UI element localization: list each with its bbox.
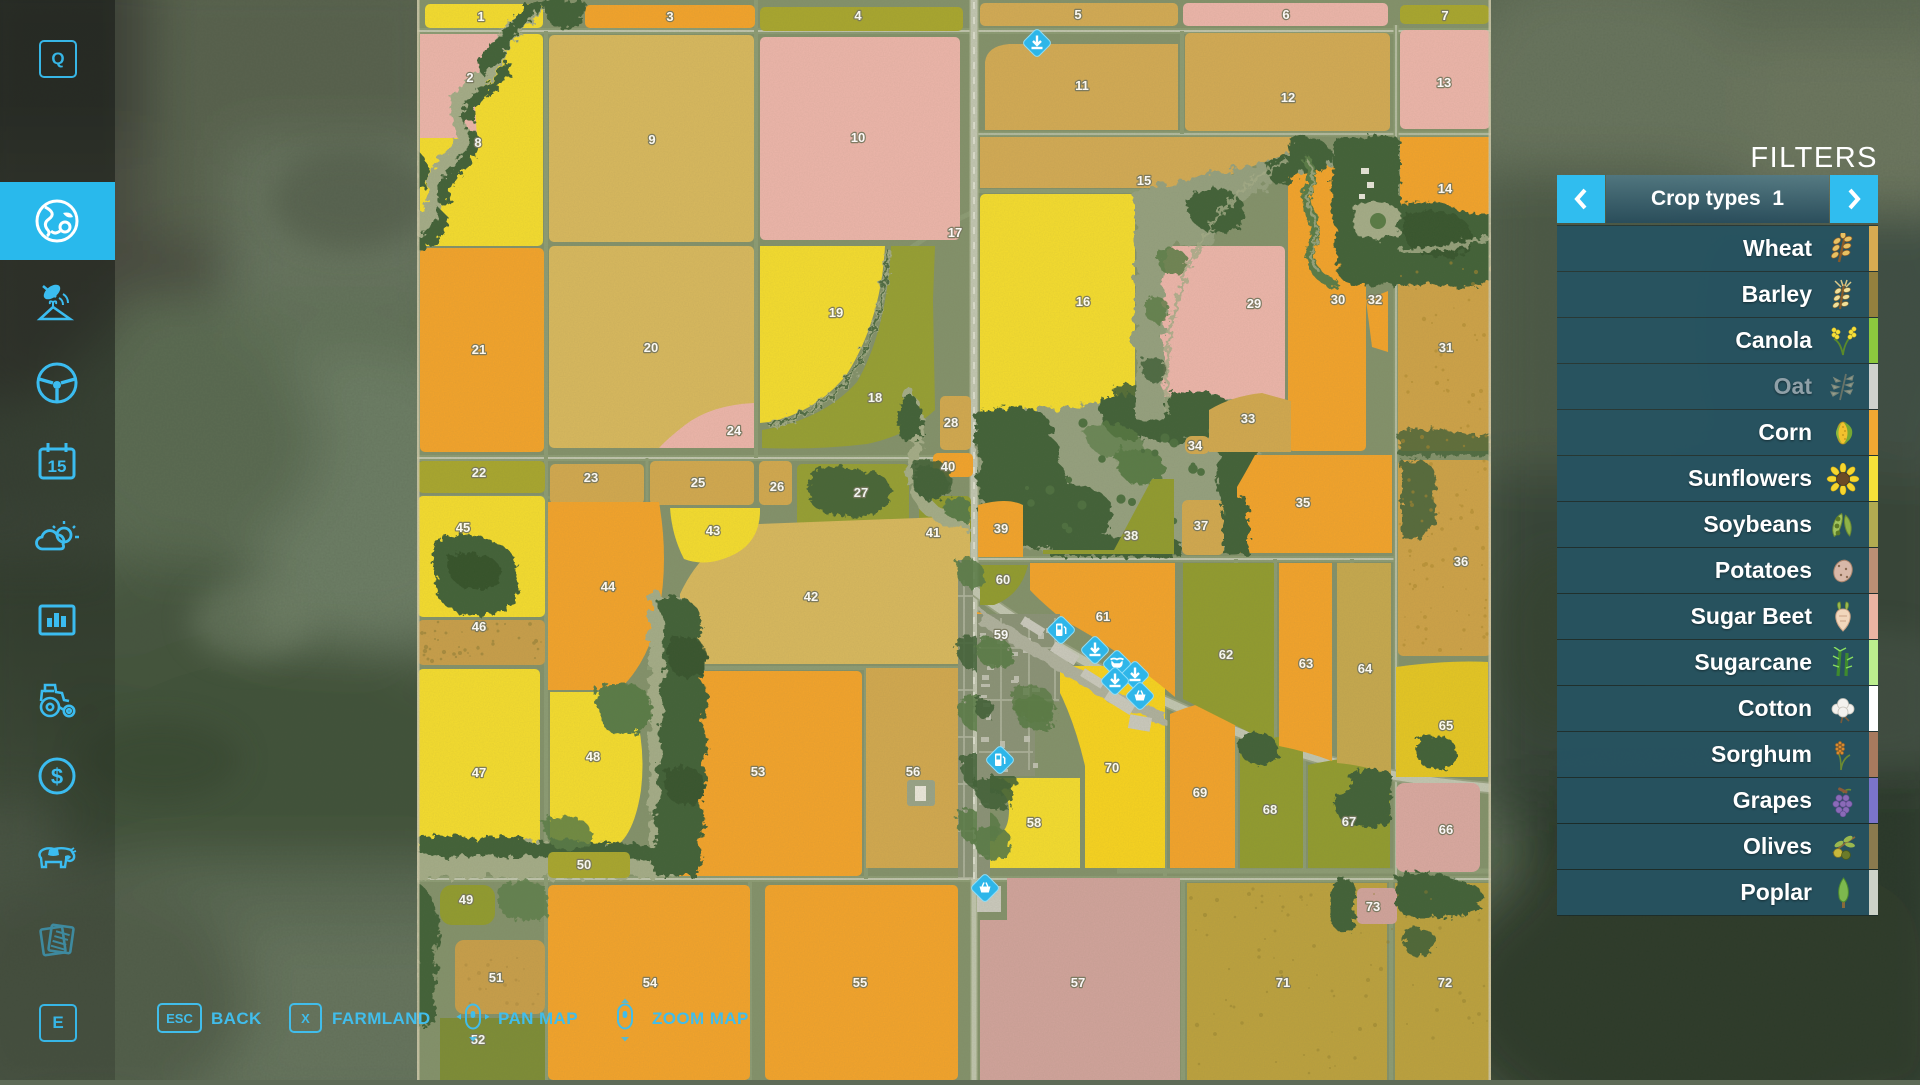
svg-text:16: 16 xyxy=(1076,294,1090,309)
svg-text:44: 44 xyxy=(601,579,616,594)
svg-text:22: 22 xyxy=(472,465,486,480)
svg-text:72: 72 xyxy=(1438,975,1452,990)
svg-text:43: 43 xyxy=(706,523,720,538)
svg-text:19: 19 xyxy=(829,305,843,320)
svg-text:70: 70 xyxy=(1105,760,1119,775)
svg-text:66: 66 xyxy=(1439,822,1453,837)
svg-text:50: 50 xyxy=(577,857,591,872)
svg-text:14: 14 xyxy=(1438,181,1453,196)
svg-text:55: 55 xyxy=(853,975,867,990)
svg-text:48: 48 xyxy=(586,749,600,764)
svg-text:61: 61 xyxy=(1096,609,1110,624)
svg-text:12: 12 xyxy=(1281,90,1295,105)
svg-text:47: 47 xyxy=(472,765,486,780)
svg-text:30: 30 xyxy=(1331,292,1345,307)
svg-text:5: 5 xyxy=(1074,7,1081,22)
svg-text:34: 34 xyxy=(1188,438,1203,453)
svg-text:60: 60 xyxy=(996,572,1010,587)
svg-text:53: 53 xyxy=(751,764,765,779)
svg-text:8: 8 xyxy=(474,135,481,150)
svg-text:42: 42 xyxy=(804,589,818,604)
svg-text:$: $ xyxy=(51,764,63,789)
svg-text:51: 51 xyxy=(489,970,503,985)
svg-text:37: 37 xyxy=(1194,518,1208,533)
svg-text:32: 32 xyxy=(1368,292,1382,307)
svg-text:68: 68 xyxy=(1263,802,1277,817)
svg-text:57: 57 xyxy=(1071,975,1085,990)
svg-text:21: 21 xyxy=(472,342,486,357)
svg-text:35: 35 xyxy=(1296,495,1310,510)
svg-text:54: 54 xyxy=(643,975,658,990)
svg-text:17: 17 xyxy=(948,225,962,240)
svg-text:64: 64 xyxy=(1358,661,1373,676)
svg-text:15: 15 xyxy=(1137,173,1151,188)
svg-text:39: 39 xyxy=(994,521,1008,536)
svg-text:7: 7 xyxy=(1441,8,1448,23)
svg-text:1: 1 xyxy=(477,9,484,24)
svg-text:41: 41 xyxy=(926,525,940,540)
svg-text:3: 3 xyxy=(666,9,673,24)
svg-text:71: 71 xyxy=(1276,975,1290,990)
svg-text:24: 24 xyxy=(727,423,742,438)
svg-text:25: 25 xyxy=(691,475,705,490)
svg-text:62: 62 xyxy=(1219,647,1233,662)
svg-text:49: 49 xyxy=(459,892,473,907)
svg-text:28: 28 xyxy=(944,415,958,430)
svg-text:15: 15 xyxy=(48,457,67,476)
svg-text:63: 63 xyxy=(1299,656,1313,671)
svg-text:69: 69 xyxy=(1193,785,1207,800)
svg-text:2: 2 xyxy=(466,70,473,85)
svg-text:31: 31 xyxy=(1439,340,1453,355)
svg-text:6: 6 xyxy=(1282,7,1289,22)
svg-text:67: 67 xyxy=(1342,814,1356,829)
svg-text:58: 58 xyxy=(1027,815,1041,830)
svg-text:46: 46 xyxy=(472,619,486,634)
svg-text:10: 10 xyxy=(851,130,865,145)
svg-text:11: 11 xyxy=(1075,78,1089,93)
svg-text:40: 40 xyxy=(941,459,955,474)
svg-text:45: 45 xyxy=(456,520,470,535)
svg-text:29: 29 xyxy=(1247,296,1261,311)
svg-text:38: 38 xyxy=(1124,528,1138,543)
svg-text:13: 13 xyxy=(1437,75,1451,90)
svg-text:59: 59 xyxy=(994,627,1008,642)
svg-text:23: 23 xyxy=(584,470,598,485)
svg-text:56: 56 xyxy=(906,764,920,779)
svg-text:20: 20 xyxy=(644,340,658,355)
svg-text:65: 65 xyxy=(1439,718,1453,733)
svg-text:18: 18 xyxy=(868,390,882,405)
svg-text:26: 26 xyxy=(770,479,784,494)
svg-text:27: 27 xyxy=(854,485,868,500)
svg-text:4: 4 xyxy=(854,8,862,23)
svg-text:33: 33 xyxy=(1241,411,1255,426)
svg-text:36: 36 xyxy=(1454,554,1468,569)
svg-text:9: 9 xyxy=(648,132,655,147)
svg-text:73: 73 xyxy=(1366,899,1380,914)
